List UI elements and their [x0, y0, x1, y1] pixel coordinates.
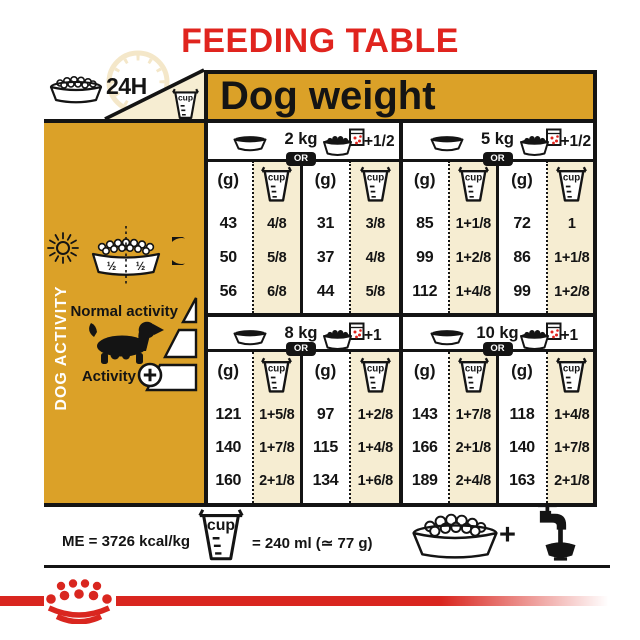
table-cell-value: 3/8: [351, 213, 400, 235]
table-cell-value: 1+2/8: [450, 247, 497, 269]
page: FEEDING TABLE 24H cup Dog weight DOG ACT…: [0, 0, 640, 640]
svg-text:cup: cup: [367, 363, 384, 374]
svg-text:cup: cup: [465, 172, 482, 183]
cup-column-header-icon: cup: [261, 357, 292, 400]
bowl-and-pouch-icon: [519, 127, 565, 163]
grams-column-header: (g): [401, 170, 449, 190]
table-cell-value: 1+2/8: [351, 404, 400, 426]
svg-text:cup: cup: [268, 172, 285, 183]
grams-column-header: (g): [401, 361, 449, 381]
table-cell-value: 1+4/8: [351, 437, 400, 459]
or-badge: OR: [483, 342, 513, 356]
extra-portion-label: +1/2: [561, 133, 592, 151]
table-cell-value: 4/8: [254, 213, 301, 235]
table-cell-value: 118: [499, 404, 546, 426]
table-cell-value: 86: [499, 247, 546, 269]
svg-text:cup: cup: [563, 172, 580, 183]
table-cell-value: 72: [499, 213, 546, 235]
table-cell-value: 140: [205, 437, 252, 459]
dog-weight-label: Dog weight: [208, 74, 593, 118]
table-cell-value: 97: [302, 404, 349, 426]
page-title: FEEDING TABLE: [0, 22, 640, 61]
table-cell-value: 160: [205, 470, 252, 492]
sun-icon: [45, 230, 81, 266]
or-badge: OR: [483, 152, 513, 166]
half-half-bowl-icon: ½ ½: [80, 226, 172, 288]
svg-text:½: ½: [136, 261, 146, 273]
table-cell-value: 1+4/8: [450, 281, 497, 303]
table-cell-value: 56: [205, 281, 252, 303]
table-cell-value: 31: [302, 213, 349, 235]
red-stripe-right: [116, 596, 640, 606]
table-cell-value: 1+2/8: [548, 281, 597, 303]
table-cell-value: 121: [205, 404, 252, 426]
table-cell-value: 112: [402, 281, 449, 303]
table-cell-value: 43: [205, 213, 252, 235]
table-cell-value: 1+4/8: [548, 404, 597, 426]
red-stripe-left: [0, 596, 44, 606]
table-cell-value: 99: [402, 247, 449, 269]
table-cell-value: 37: [302, 247, 349, 269]
grams-column-header: (g): [302, 170, 350, 190]
table-cell-value: 1+1/8: [450, 213, 497, 235]
cup-equivalence-value: = 240 ml (≃ 77 g): [252, 534, 373, 552]
svg-text:cup: cup: [268, 363, 285, 374]
table-cell-value: 1+7/8: [450, 404, 497, 426]
bowl-and-pouch-icon: [322, 127, 368, 163]
table-cell-value: 163: [499, 470, 546, 492]
grams-column-header: (g): [204, 361, 252, 381]
svg-text:cup: cup: [367, 172, 384, 183]
cup-column-header-icon: cup: [458, 166, 489, 209]
table-cell-value: 2+1/8: [450, 437, 497, 459]
bowl-and-pouch-icon: [519, 321, 565, 357]
activity-label: Activity: [60, 368, 136, 385]
table-cell-value: 140: [499, 437, 546, 459]
table-cell-value: 4/8: [351, 247, 400, 269]
kibble-bowl-icon-large: [408, 512, 502, 562]
dog-activity-vertical-label: DOG ACTIVITY: [53, 278, 71, 418]
table-cell-value: 1+1/8: [548, 247, 597, 269]
extra-portion-label: +1: [561, 327, 579, 345]
table-cell-value: 6/8: [254, 281, 301, 303]
extra-portion-label: +1: [364, 327, 382, 345]
dog-weight-header: Dog weight: [204, 70, 597, 123]
table-cell-value: 1+7/8: [254, 437, 301, 459]
table-cell-value: 5/8: [254, 247, 301, 269]
table-cell-value: 134: [302, 470, 349, 492]
cup-column-header-icon: cup: [556, 166, 587, 209]
crown-paw-logo: [42, 576, 118, 624]
table-cell-value: 143: [402, 404, 449, 426]
svg-text:cup: cup: [563, 363, 580, 374]
me-energy-value: ME = 3726 kcal/kg: [62, 533, 190, 550]
dog-activity-sidebar: DOG ACTIVITY ½ ½: [44, 119, 204, 507]
plus-sign: +: [499, 519, 516, 552]
grams-column-header: (g): [498, 361, 546, 381]
table-cell-value: 2+1/8: [254, 470, 301, 492]
table-cell-value: 2+4/8: [450, 470, 497, 492]
extra-portion-label: +1/2: [364, 133, 395, 151]
svg-text:½: ½: [107, 261, 117, 273]
table-cell-value: 115: [302, 437, 349, 459]
cup-column-header-icon: cup: [556, 357, 587, 400]
svg-text:cup: cup: [465, 363, 482, 374]
measuring-cup-icon-large: cup: [198, 508, 244, 564]
table-cell-value: 99: [499, 281, 546, 303]
table-cell-value: 189: [402, 470, 449, 492]
svg-text:cup: cup: [178, 92, 193, 102]
table-cell-value: 1+6/8: [351, 470, 400, 492]
or-badge: OR: [286, 152, 316, 166]
table-cell-value: 1+5/8: [254, 404, 301, 426]
or-badge: OR: [286, 342, 316, 356]
measuring-cup-icon: cup: [172, 88, 199, 121]
grams-column-header: (g): [302, 361, 350, 381]
grams-column-header: (g): [498, 170, 546, 190]
svg-text:cup: cup: [207, 517, 236, 534]
water-faucet-icon: [526, 502, 580, 562]
cup-column-header-icon: cup: [360, 166, 391, 209]
moon-icon: [172, 237, 192, 265]
divider-line: [44, 565, 610, 568]
table-cell-value: 50: [205, 247, 252, 269]
grams-column-header: (g): [204, 170, 252, 190]
table-cell-value: 1+7/8: [548, 437, 597, 459]
table-cell-value: 1: [548, 213, 597, 235]
table-cell-value: 44: [302, 281, 349, 303]
table-cell-value: 2+1/8: [548, 470, 597, 492]
table-cell-value: 166: [402, 437, 449, 459]
activity-steps-icon: [135, 294, 201, 406]
cup-column-header-icon: cup: [261, 166, 292, 209]
cup-column-header-icon: cup: [458, 357, 489, 400]
table-cell-value: 85: [402, 213, 449, 235]
bowl-and-pouch-icon: [322, 321, 368, 357]
table-cell-value: 5/8: [351, 281, 400, 303]
cup-column-header-icon: cup: [360, 357, 391, 400]
